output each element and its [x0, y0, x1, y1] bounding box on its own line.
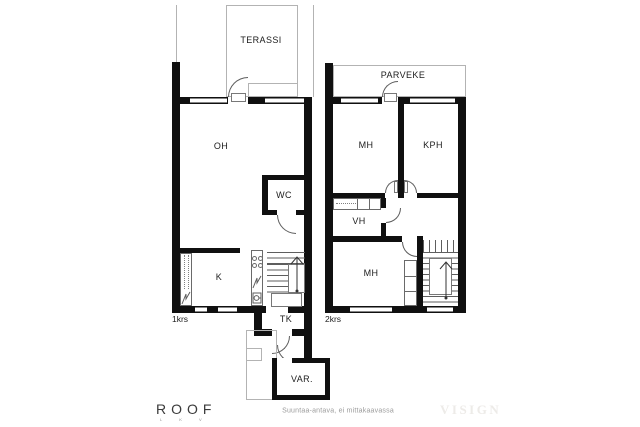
- room-label-kph: KPH: [423, 140, 443, 150]
- stove-burner: [252, 263, 257, 268]
- appliance-symbol: [251, 274, 263, 290]
- room-label-wc: WC: [276, 190, 292, 200]
- boundary-line: [176, 5, 177, 62]
- disclaimer-text: Suuntaa-antava, ei mittakaavassa: [282, 408, 394, 415]
- wardrobe-divider: [369, 198, 370, 210]
- cabinet-hatch: [184, 255, 185, 289]
- door-arc-kph: [404, 180, 417, 193]
- stairs-f2-top-run: [423, 240, 458, 252]
- room-label-vh: VH: [352, 216, 365, 226]
- roof-logo-subtext: L K V: [160, 417, 210, 422]
- wall-var-right: [325, 358, 330, 400]
- room-label-mh1: MH: [359, 140, 374, 150]
- wall-wc-top: [262, 175, 304, 180]
- window: [341, 98, 378, 103]
- window: [190, 98, 227, 103]
- window: [427, 307, 453, 312]
- wall-f2-right: [458, 97, 466, 313]
- window: [265, 98, 304, 103]
- door-arc-vh: [386, 208, 401, 223]
- window: [410, 98, 455, 103]
- door-opening: [404, 193, 417, 198]
- sink-symbol: [251, 291, 263, 305]
- wall-tk-right: [304, 313, 312, 360]
- room-label-var: VAR.: [291, 374, 313, 384]
- wardrobe-rail: [336, 203, 356, 204]
- stove-burner: [258, 263, 263, 268]
- door-arc-wc: [277, 215, 296, 234]
- door-opening: [277, 358, 292, 363]
- window: [218, 307, 237, 312]
- cabinet-hatch: [188, 255, 189, 289]
- floor-label-2krs: 2krs: [325, 314, 341, 324]
- room-label-oh: OH: [214, 141, 228, 151]
- window: [350, 307, 392, 312]
- stairs-up-arrow: [286, 252, 310, 296]
- door-arc-mh1: [385, 180, 398, 193]
- appliance-symbol: [180, 290, 192, 306]
- wall-vh-bottom: [333, 236, 402, 242]
- room-label-mh2: MH: [364, 268, 379, 278]
- wall-f1-bottom: [172, 306, 312, 313]
- boundary-line: [313, 5, 314, 97]
- roof-logo: ROOF: [156, 401, 216, 417]
- terrace-step-line: [248, 83, 298, 84]
- wall-var-bottom: [272, 395, 330, 400]
- porch-step: [246, 348, 262, 361]
- room-label-parveke: PARVEKE: [381, 70, 426, 80]
- room-label-tk: TK: [280, 314, 292, 324]
- floor-plan-image: TERASSI OH WC K TK 1krs PARVEKE MH KPH V…: [0, 0, 640, 427]
- door-arc-mh2: [402, 242, 417, 257]
- floor-label-1krs: 1krs: [172, 314, 188, 324]
- wall-wc-left: [262, 175, 268, 215]
- stove-burner: [252, 256, 257, 261]
- terrace-step-line: [248, 83, 249, 97]
- room-label-k: K: [216, 272, 222, 282]
- door-opening: [385, 193, 398, 198]
- wardrobe-divider: [404, 291, 417, 292]
- wardrobe-column: [404, 260, 417, 306]
- window: [195, 307, 207, 312]
- visign-watermark: VISIGN: [440, 402, 501, 418]
- stairs-f1: [267, 264, 288, 293]
- wardrobe-divider: [404, 276, 417, 277]
- room-label-terrace: TERASSI: [240, 35, 281, 45]
- wardrobe-divider: [357, 198, 358, 210]
- stairs-up-arrow: [435, 256, 459, 302]
- stair-passage-opening: [266, 306, 288, 313]
- stove-burner: [258, 256, 263, 261]
- wall-var-left: [272, 358, 277, 400]
